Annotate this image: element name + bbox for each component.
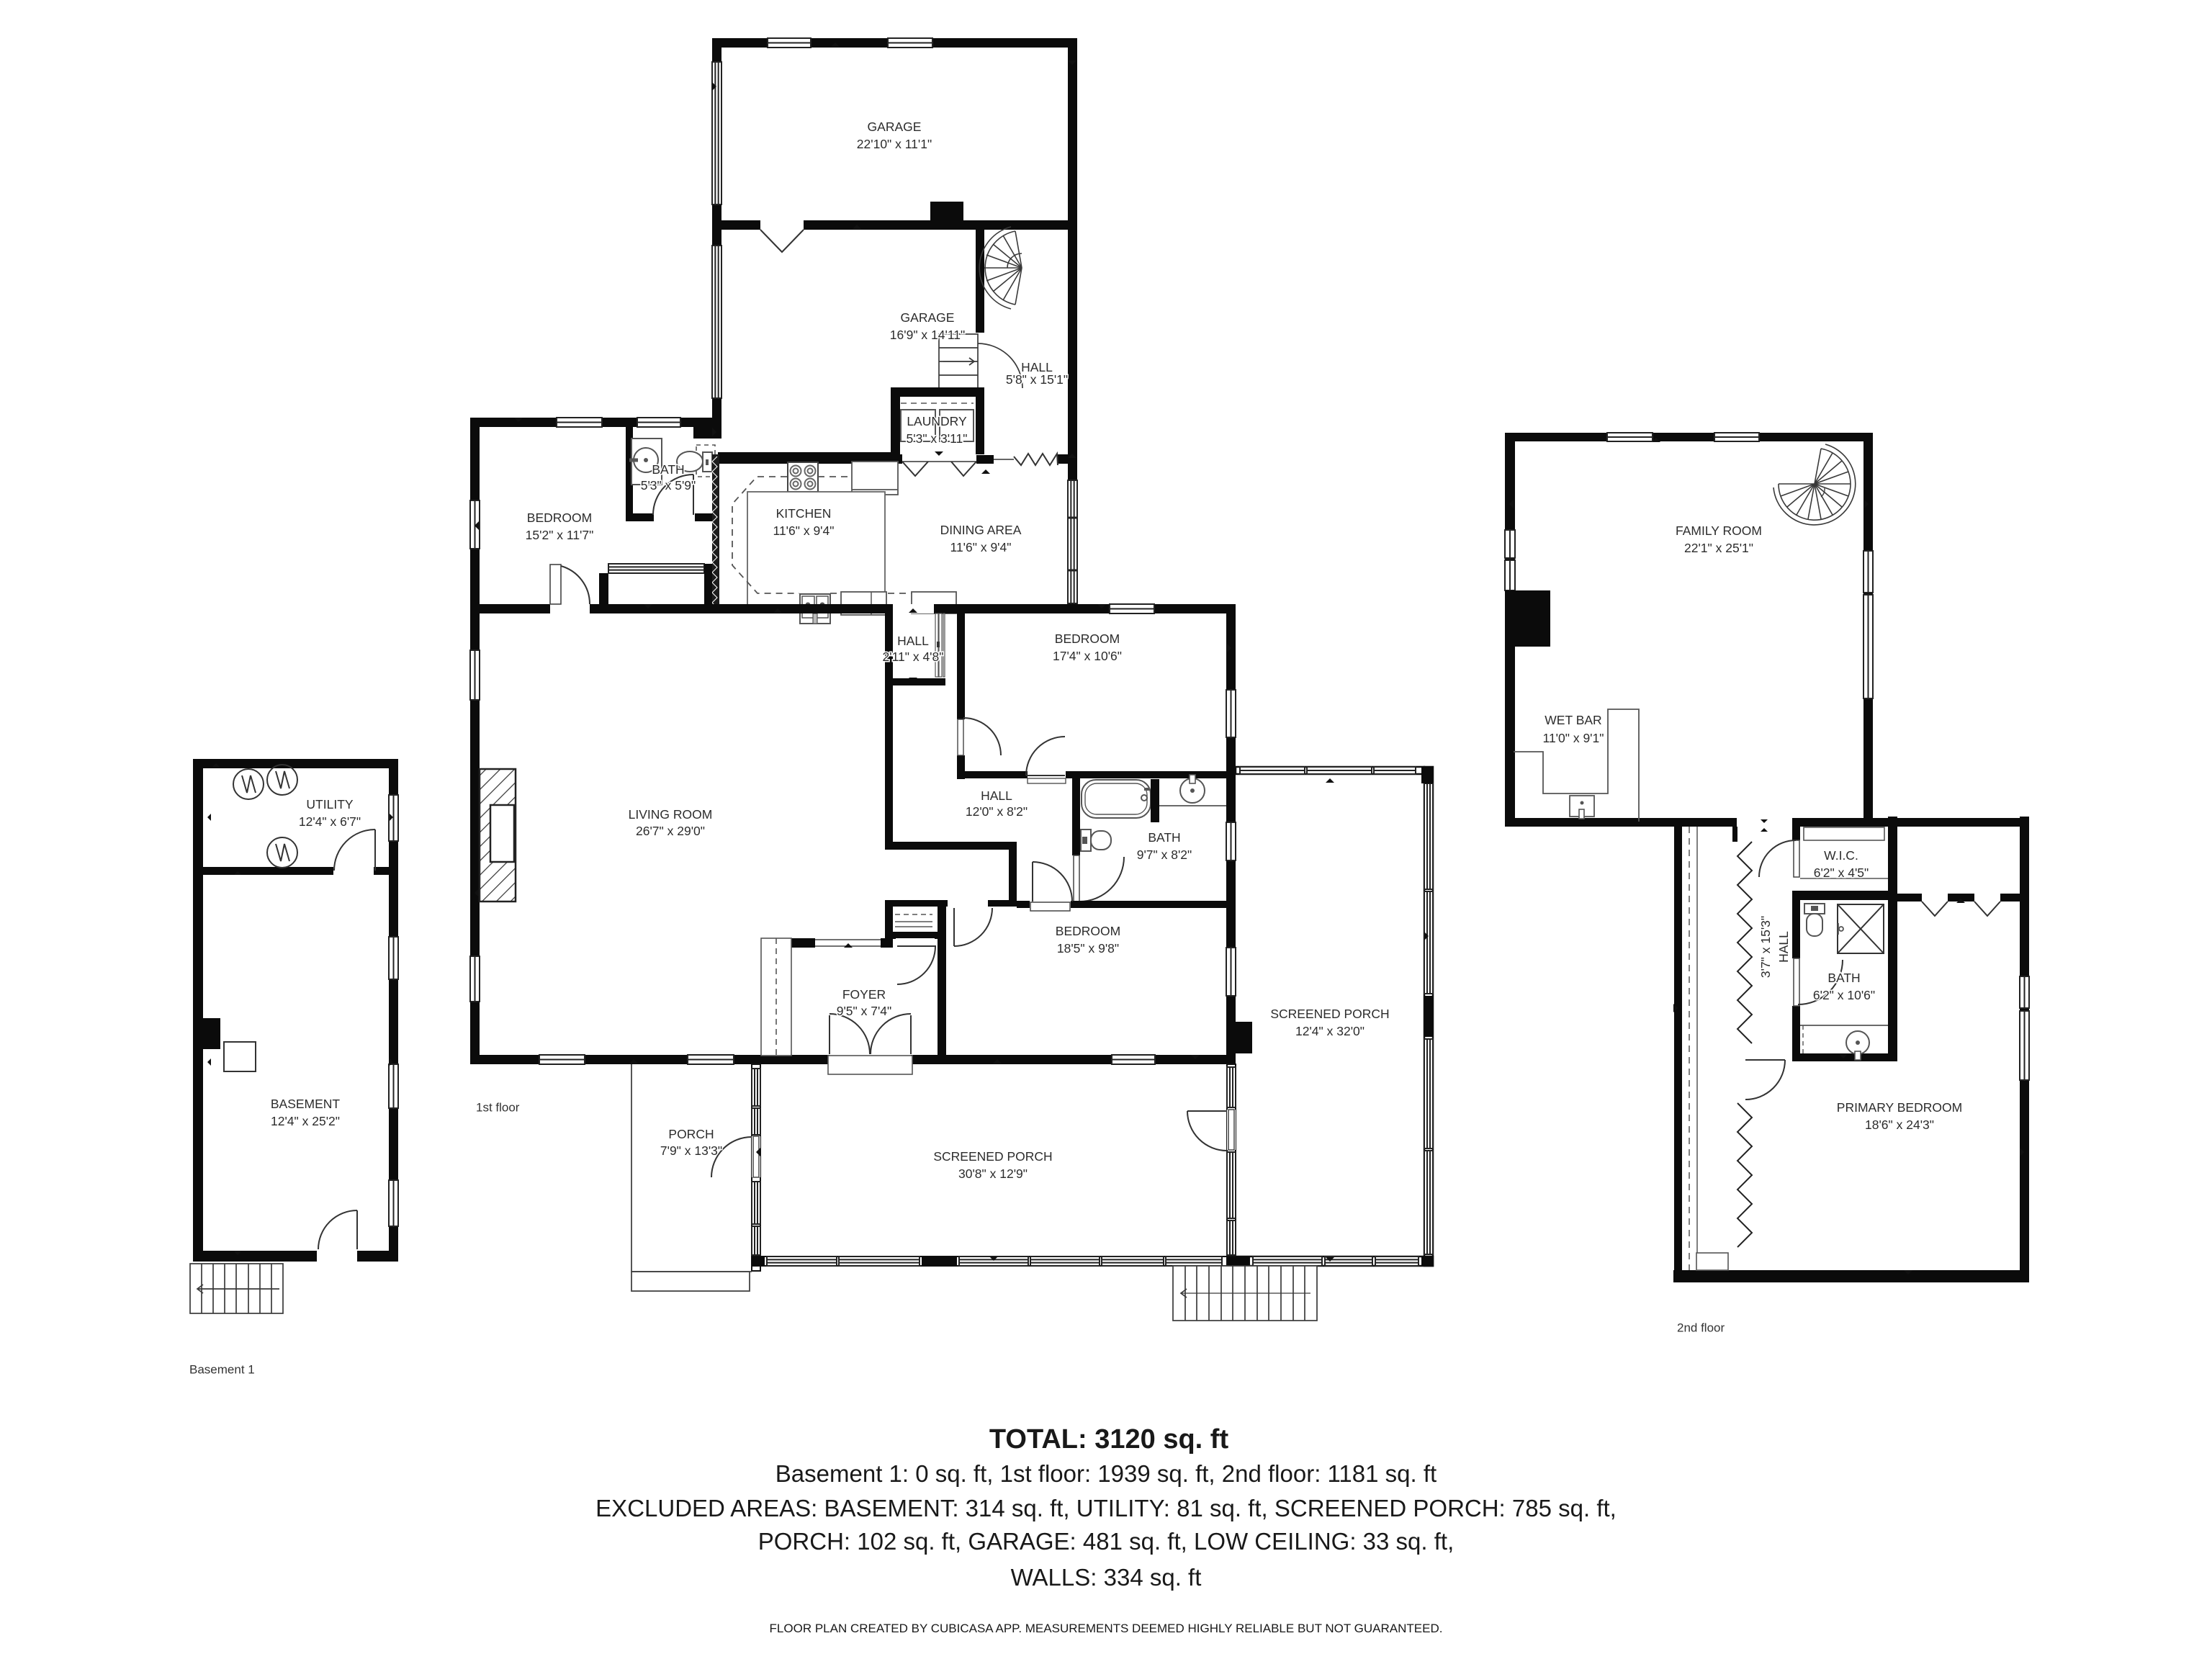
svg-text:26'7" x 29'0": 26'7" x 29'0" bbox=[636, 824, 705, 838]
svg-text:17'4" x 10'6": 17'4" x 10'6" bbox=[1053, 649, 1122, 663]
svg-text:22'1" x 25'1": 22'1" x 25'1" bbox=[1684, 541, 1753, 555]
svg-text:11'6" x 9'4": 11'6" x 9'4" bbox=[773, 523, 835, 538]
svg-text:BATH: BATH bbox=[1148, 830, 1180, 845]
svg-text:18'6" x 24'3": 18'6" x 24'3" bbox=[1865, 1118, 1934, 1132]
svg-text:PORCH: PORCH bbox=[668, 1127, 714, 1141]
svg-text:PRIMARY BEDROOM: PRIMARY BEDROOM bbox=[1837, 1100, 1962, 1115]
svg-text:12'0" x 8'2": 12'0" x 8'2" bbox=[966, 804, 1028, 819]
svg-text:5'3" x 3'11": 5'3" x 3'11" bbox=[907, 431, 968, 446]
svg-text:2nd floor: 2nd floor bbox=[1677, 1321, 1725, 1335]
svg-text:FOYER: FOYER bbox=[842, 987, 886, 1002]
svg-text:9'7" x 8'2": 9'7" x 8'2" bbox=[1137, 848, 1192, 862]
svg-text:GARAGE: GARAGE bbox=[868, 120, 922, 134]
svg-text:WALLS: 334 sq. ft: WALLS: 334 sq. ft bbox=[1011, 1564, 1202, 1591]
svg-text:UTILITY: UTILITY bbox=[306, 797, 353, 811]
svg-text:18'5" x 9'8": 18'5" x 9'8" bbox=[1057, 941, 1119, 956]
svg-text:TOTAL: 3120 sq. ft: TOTAL: 3120 sq. ft bbox=[989, 1424, 1229, 1455]
svg-text:GARAGE: GARAGE bbox=[901, 310, 955, 325]
svg-text:Basement 1: Basement 1 bbox=[189, 1363, 255, 1377]
svg-text:30'8" x 12'9": 30'8" x 12'9" bbox=[958, 1166, 1028, 1181]
svg-text:HALL: HALL bbox=[1776, 931, 1791, 963]
svg-text:6'2" x 10'6": 6'2" x 10'6" bbox=[1813, 988, 1875, 1002]
svg-text:15'2" x 11'7": 15'2" x 11'7" bbox=[526, 528, 594, 542]
svg-text:BEDROOM: BEDROOM bbox=[1056, 924, 1120, 938]
svg-text:FAMILY ROOM: FAMILY ROOM bbox=[1676, 523, 1762, 538]
svg-text:12'4" x 32'0": 12'4" x 32'0" bbox=[1295, 1024, 1364, 1038]
svg-text:SCREENED PORCH: SCREENED PORCH bbox=[933, 1149, 1052, 1164]
svg-text:WET BAR: WET BAR bbox=[1545, 713, 1601, 727]
svg-text:DINING AREA: DINING AREA bbox=[940, 523, 1022, 537]
svg-text:BATH: BATH bbox=[1827, 971, 1860, 985]
svg-text:12'4" x 6'7": 12'4" x 6'7" bbox=[299, 814, 361, 829]
svg-text:W.I.C.: W.I.C. bbox=[1824, 848, 1858, 863]
svg-text:BEDROOM: BEDROOM bbox=[527, 511, 592, 525]
svg-text:9'5" x 7'4": 9'5" x 7'4" bbox=[837, 1004, 892, 1018]
svg-text:PORCH: 102 sq. ft, GARAGE: 481: PORCH: 102 sq. ft, GARAGE: 481 sq. ft, L… bbox=[758, 1528, 1455, 1555]
svg-text:11'0" x 9'1": 11'0" x 9'1" bbox=[1543, 731, 1604, 745]
svg-text:3'7" x 15'3": 3'7" x 15'3" bbox=[1758, 916, 1773, 978]
svg-text:SCREENED PORCH: SCREENED PORCH bbox=[1270, 1007, 1389, 1021]
svg-text:12'4" x 25'2": 12'4" x 25'2" bbox=[271, 1114, 340, 1128]
svg-text:FLOOR PLAN CREATED BY CUBICASA: FLOOR PLAN CREATED BY CUBICASA APP. MEAS… bbox=[770, 1622, 1443, 1635]
svg-text:2'11" x 4'8": 2'11" x 4'8" bbox=[883, 649, 944, 664]
svg-text:7'9" x 13'3": 7'9" x 13'3" bbox=[660, 1143, 722, 1158]
svg-text:BEDROOM: BEDROOM bbox=[1055, 631, 1120, 646]
svg-text:HALL: HALL bbox=[897, 634, 929, 648]
svg-text:LIVING ROOM: LIVING ROOM bbox=[629, 807, 713, 822]
svg-text:11'6" x 9'4": 11'6" x 9'4" bbox=[950, 540, 1012, 554]
svg-text:Basement 1: 0 sq. ft, 1st floo: Basement 1: 0 sq. ft, 1st floor: 1939 sq… bbox=[775, 1460, 1437, 1487]
svg-text:5'3" x 5'9": 5'3" x 5'9" bbox=[641, 478, 696, 493]
svg-text:BATH: BATH bbox=[652, 462, 684, 477]
svg-text:EXCLUDED AREAS: BASEMENT: 314: EXCLUDED AREAS: BASEMENT: 314 sq. ft, UT… bbox=[595, 1495, 1617, 1521]
svg-text:16'9" x 14'11": 16'9" x 14'11" bbox=[890, 328, 965, 342]
svg-text:KITCHEN: KITCHEN bbox=[776, 506, 832, 521]
svg-text:5'8" x 15'1": 5'8" x 15'1" bbox=[1006, 372, 1068, 387]
svg-text:LAUNDRY: LAUNDRY bbox=[907, 414, 967, 428]
svg-text:1st floor: 1st floor bbox=[476, 1101, 520, 1115]
svg-text:22'10" x 11'1": 22'10" x 11'1" bbox=[857, 137, 932, 151]
svg-text:BASEMENT: BASEMENT bbox=[271, 1097, 341, 1111]
svg-text:HALL: HALL bbox=[981, 788, 1012, 803]
svg-text:6'2" x 4'5": 6'2" x 4'5" bbox=[1814, 866, 1869, 880]
